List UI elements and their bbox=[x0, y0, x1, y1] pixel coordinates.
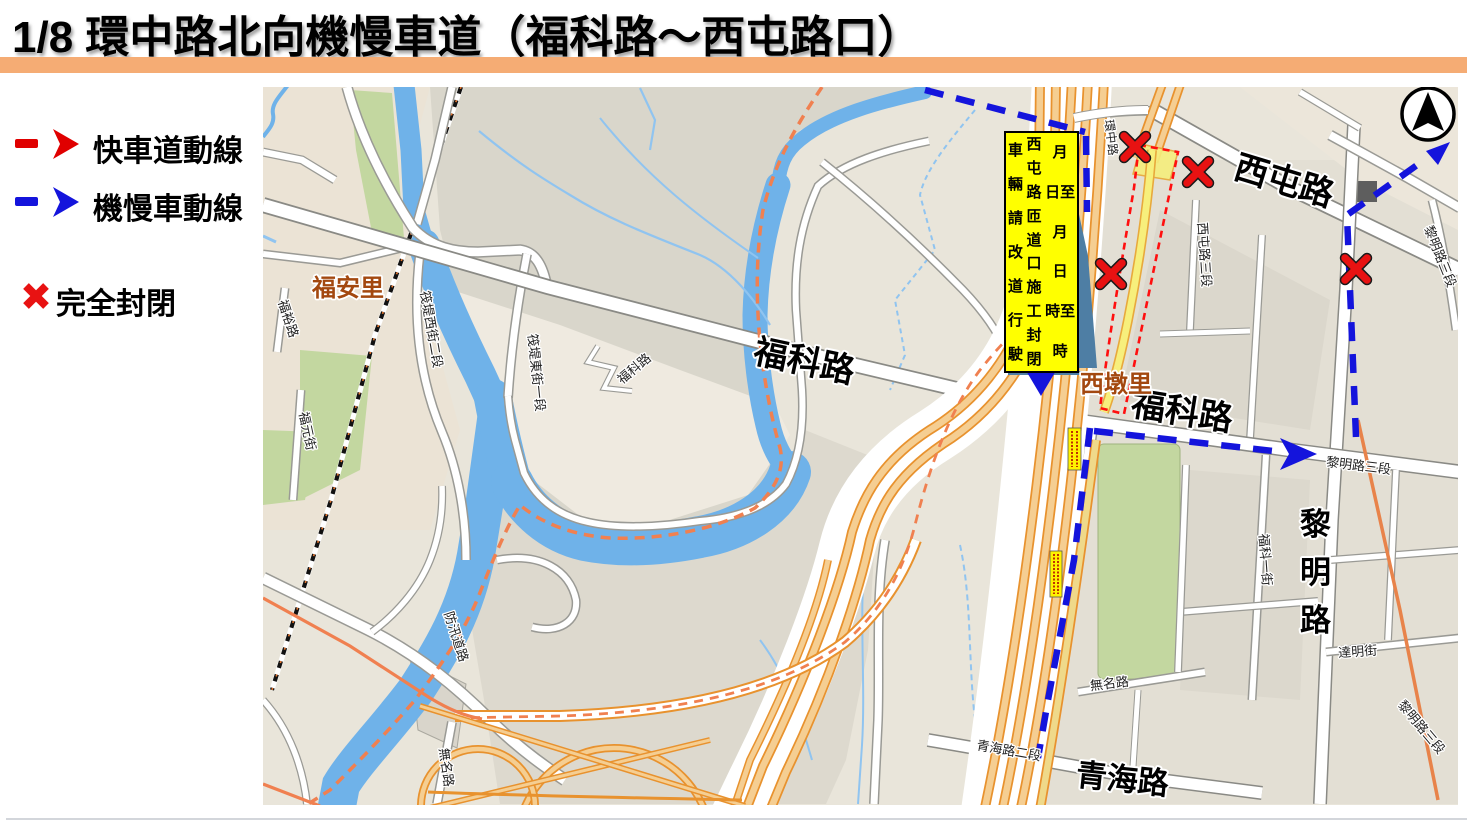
svg-text:黎: 黎 bbox=[1300, 507, 1331, 542]
svg-text:福安里: 福安里 bbox=[311, 274, 384, 302]
svg-text:達明街: 達明街 bbox=[1338, 643, 1378, 661]
svg-text:明: 明 bbox=[1300, 555, 1331, 590]
svg-text:路: 路 bbox=[1300, 603, 1332, 638]
svg-text:西墩里: 西墩里 bbox=[1080, 371, 1152, 398]
